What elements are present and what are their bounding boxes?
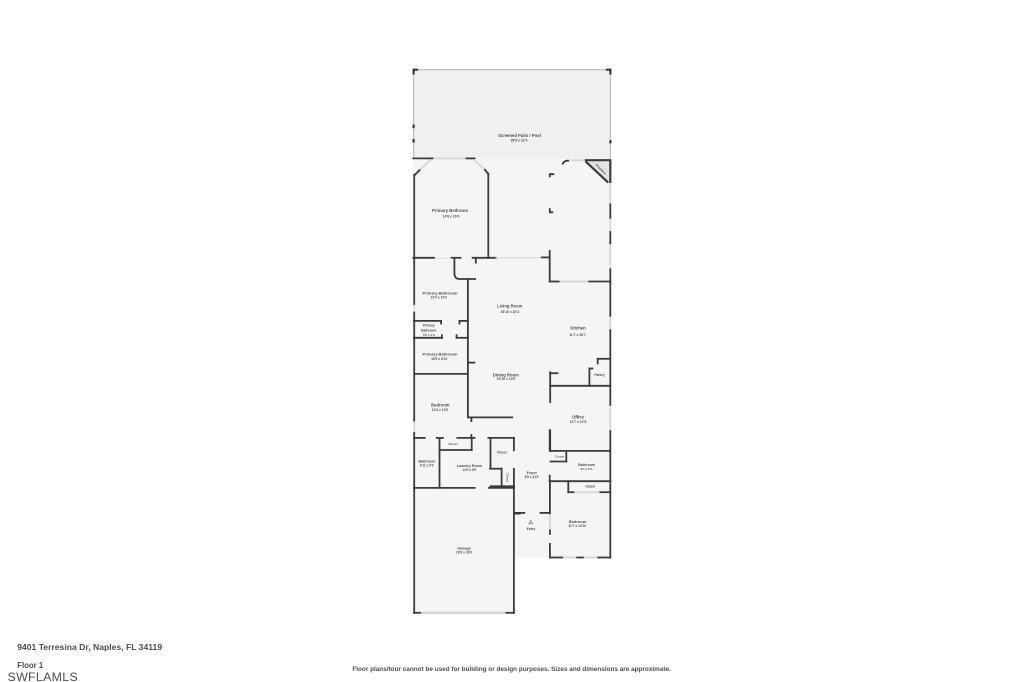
svg-text:Primary Bathroom: Primary Bathroom xyxy=(423,290,458,295)
svg-text:Primary Bedroom: Primary Bedroom xyxy=(432,208,468,213)
svg-text:5'5 x 4'9: 5'5 x 4'9 xyxy=(423,333,435,337)
svg-text:15'10 x 20'3: 15'10 x 20'3 xyxy=(501,310,520,314)
svg-text:Closet: Closet xyxy=(555,454,564,458)
svg-text:Bathroom: Bathroom xyxy=(421,328,436,332)
svg-text:19'8 x 24'0: 19'8 x 24'0 xyxy=(456,551,472,555)
svg-text:Entry: Entry xyxy=(527,527,536,531)
svg-text:12'0 x 8'0: 12'0 x 8'0 xyxy=(462,468,476,472)
svg-text:11'7 x 14'10: 11'7 x 14'10 xyxy=(568,524,586,528)
svg-text:Closet: Closet xyxy=(585,485,596,489)
svg-text:Closet: Closet xyxy=(497,451,508,455)
svg-text:14'8 x 16'0: 14'8 x 16'0 xyxy=(443,214,460,218)
svg-text:8'8 x 11'9: 8'8 x 11'9 xyxy=(525,475,539,479)
svg-text:Bedroom: Bedroom xyxy=(431,403,450,408)
svg-text:Office: Office xyxy=(572,415,585,420)
svg-text:4'11 x 9'0: 4'11 x 9'0 xyxy=(420,463,434,467)
svg-text:SWFLAMLS: SWFLAMLS xyxy=(8,670,79,682)
svg-text:Closet: Closet xyxy=(505,473,509,482)
svg-text:Primary: Primary xyxy=(423,324,435,328)
svg-text:Living Room: Living Room xyxy=(497,303,523,308)
svg-text:11'7 x 26'7: 11'7 x 26'7 xyxy=(569,333,586,337)
svg-text:Floor 1: Floor 1 xyxy=(17,661,44,670)
svg-text:Primary Bathroom: Primary Bathroom xyxy=(423,352,458,357)
svg-text:8'1 x 6'4: 8'1 x 6'4 xyxy=(581,467,593,471)
svg-text:10'4 x 10'0: 10'4 x 10'0 xyxy=(431,296,447,300)
svg-text:Bedroom: Bedroom xyxy=(569,519,587,524)
svg-text:9401 Terresina Dr, Naples, FL: 9401 Terresina Dr, Naples, FL 34119 xyxy=(17,642,162,652)
svg-text:Kitchen: Kitchen xyxy=(570,325,586,330)
svg-text:Screened Patio / Pool: Screened Patio / Pool xyxy=(498,133,541,138)
svg-text:16'0 x 6'10: 16'0 x 6'10 xyxy=(431,357,447,361)
svg-text:38'5 x 21'0: 38'5 x 21'0 xyxy=(511,138,528,142)
svg-text:11'8 x 12'0: 11'8 x 12'0 xyxy=(432,408,449,412)
svg-text:10'10 x 14'5: 10'10 x 14'5 xyxy=(497,377,516,381)
svg-text:11'7 x 12'9: 11'7 x 12'9 xyxy=(570,420,587,424)
svg-text:Pantry: Pantry xyxy=(594,373,604,377)
svg-text:Closet: Closet xyxy=(448,442,457,446)
svg-text:Floor plans/tour cannot be use: Floor plans/tour cannot be used for buil… xyxy=(352,666,671,673)
